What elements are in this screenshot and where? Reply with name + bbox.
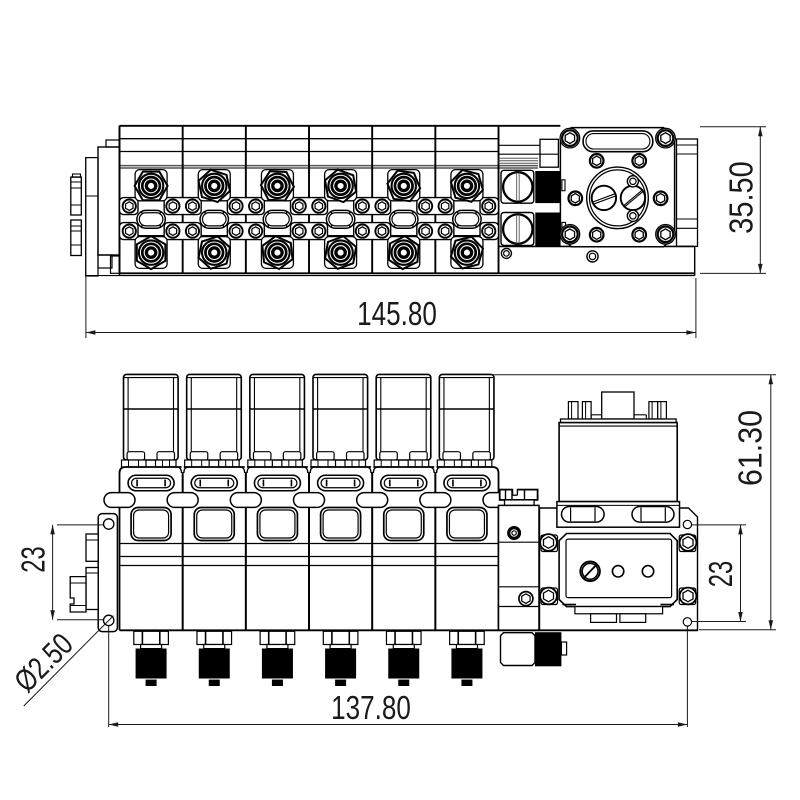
svg-text:35.50: 35.50 bbox=[723, 161, 760, 234]
svg-text:23: 23 bbox=[703, 561, 740, 587]
svg-text:145.80: 145.80 bbox=[357, 296, 437, 333]
svg-text:137.80: 137.80 bbox=[331, 690, 411, 727]
svg-text:61.30: 61.30 bbox=[731, 410, 768, 486]
svg-text:23: 23 bbox=[16, 546, 53, 572]
svg-text:Ø2.50: Ø2.50 bbox=[8, 627, 80, 699]
